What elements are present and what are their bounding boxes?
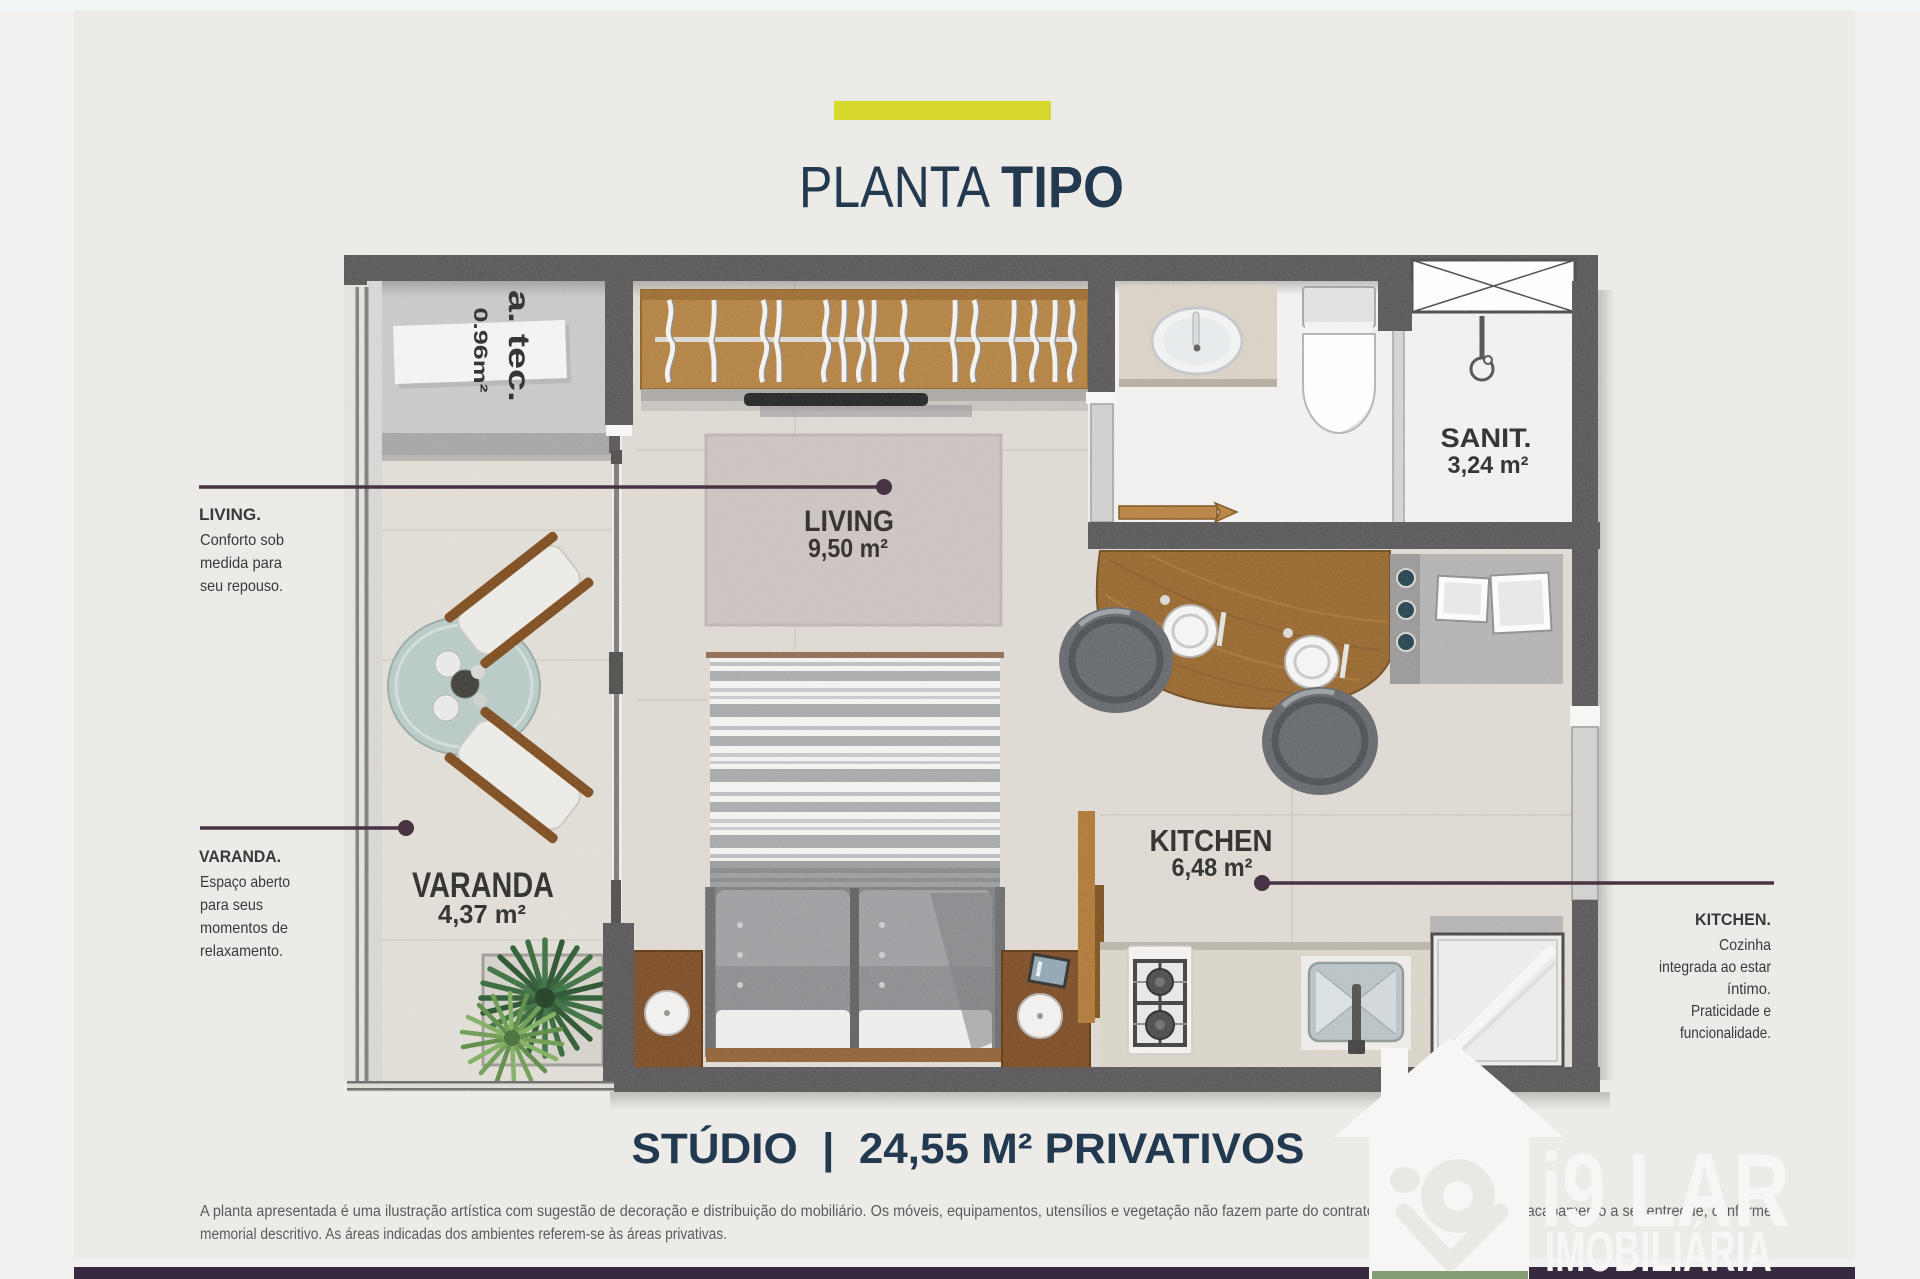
svg-text:IMOBILIÁRIA: IMOBILIÁRIA	[1545, 1220, 1772, 1279]
